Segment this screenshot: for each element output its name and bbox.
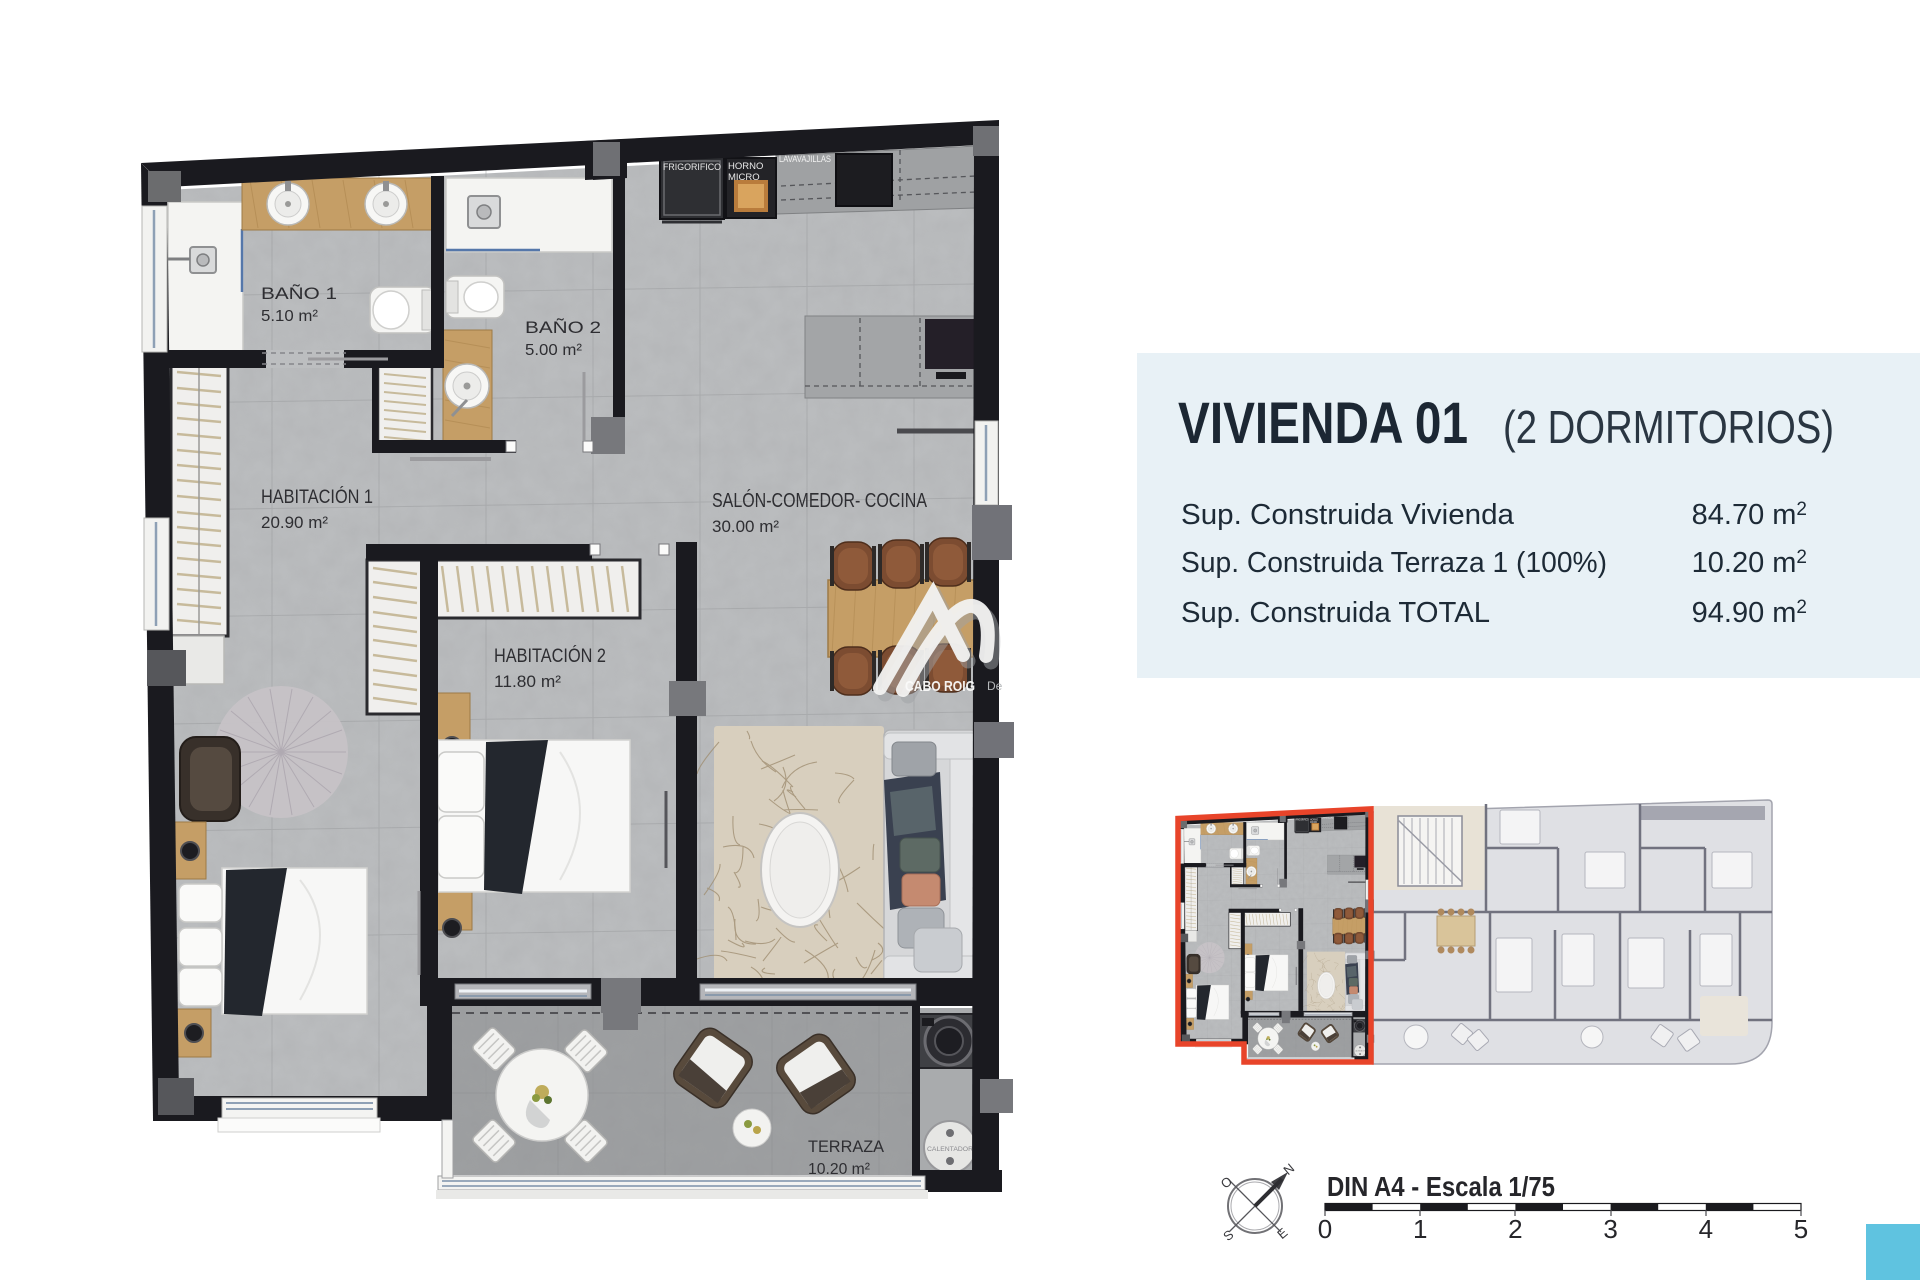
svg-text:BAÑO 1: BAÑO 1 — [261, 284, 337, 303]
svg-text:10.20 m2: 10.20 m2 — [1692, 547, 1807, 579]
svg-text:Sup. Construida Terraza 1 (100: Sup. Construida Terraza 1 (100%) — [1181, 547, 1607, 579]
svg-text:TERRAZA: TERRAZA — [808, 1137, 885, 1156]
svg-text:10.20 m²: 10.20 m² — [808, 1161, 871, 1178]
svg-text:4: 4 — [1699, 1214, 1713, 1244]
svg-text:5.00 m²: 5.00 m² — [525, 342, 583, 359]
svg-text:SALÓN-COMEDOR- COCINA: SALÓN-COMEDOR- COCINA — [712, 489, 928, 512]
svg-text:Sup. Construida TOTAL: Sup. Construida TOTAL — [1181, 597, 1490, 629]
svg-text:1: 1 — [1413, 1214, 1427, 1244]
svg-text:Sup. Construida Vivienda: Sup. Construida Vivienda — [1181, 499, 1515, 531]
svg-text:MICRO: MICRO — [728, 172, 760, 183]
svg-text:0: 0 — [1318, 1214, 1332, 1244]
svg-text:5: 5 — [1794, 1214, 1808, 1244]
svg-text:CALENTADOR: CALENTADOR — [927, 1146, 973, 1153]
svg-text:HABITACIÓN 2: HABITACIÓN 2 — [494, 645, 606, 667]
svg-text:LAVAVAJILLAS: LAVAVAJILLAS — [779, 154, 831, 165]
svg-text:HABITACIÓN 1: HABITACIÓN 1 — [261, 486, 373, 508]
svg-text:30.00 m²: 30.00 m² — [712, 517, 779, 536]
svg-text:11.80 m²: 11.80 m² — [494, 672, 561, 691]
svg-text:(2 DORMITORIOS): (2 DORMITORIOS) — [1503, 401, 1834, 453]
svg-text:HORNO: HORNO — [728, 161, 763, 172]
svg-text:VIVIENDA 01: VIVIENDA 01 — [1178, 391, 1468, 456]
svg-text:DIN A4 - Escala 1/75: DIN A4 - Escala 1/75 — [1327, 1171, 1555, 1202]
svg-text:5.10 m²: 5.10 m² — [261, 308, 319, 325]
svg-text:De: De — [987, 679, 1003, 693]
svg-text:FRIGORIFICO: FRIGORIFICO — [663, 162, 721, 173]
svg-text:CABO ROIG: CABO ROIG — [905, 678, 975, 695]
svg-text:3: 3 — [1603, 1214, 1617, 1244]
svg-text:BAÑO 2: BAÑO 2 — [525, 318, 601, 337]
svg-text:2: 2 — [1508, 1214, 1522, 1244]
svg-text:20.90 m²: 20.90 m² — [261, 513, 328, 532]
svg-text:84.70 m2: 84.70 m2 — [1692, 499, 1807, 531]
svg-text:94.90 m2: 94.90 m2 — [1692, 597, 1807, 629]
